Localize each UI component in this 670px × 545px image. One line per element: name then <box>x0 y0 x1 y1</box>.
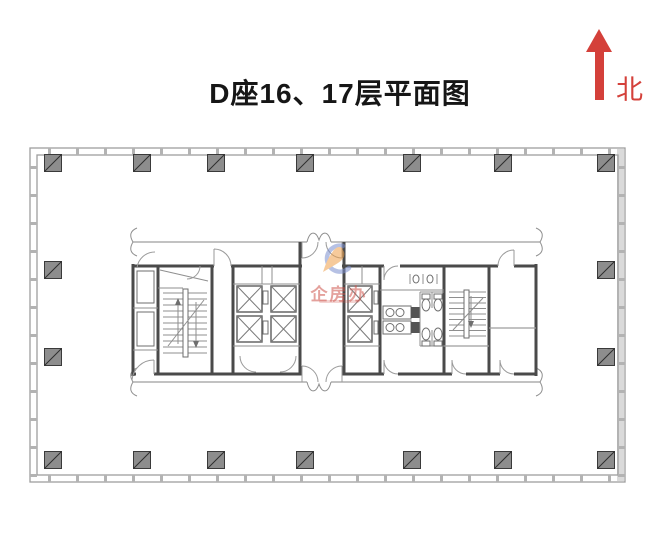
structural-columns <box>45 155 615 469</box>
restrooms <box>380 274 444 346</box>
left-shaft-room <box>133 271 158 350</box>
elevator-bank-left <box>233 266 300 346</box>
left-staircase <box>158 266 208 357</box>
elevator-bank-right <box>344 266 380 346</box>
floor-plan-drawing <box>0 0 670 545</box>
right-staircase <box>444 290 489 346</box>
right-room <box>489 250 536 374</box>
core-top-line <box>131 228 543 256</box>
core-bottom-line <box>131 368 543 396</box>
elevator-lobby <box>302 242 342 382</box>
floor-plan-page: D座16、17层平面图 北 <box>0 0 670 545</box>
